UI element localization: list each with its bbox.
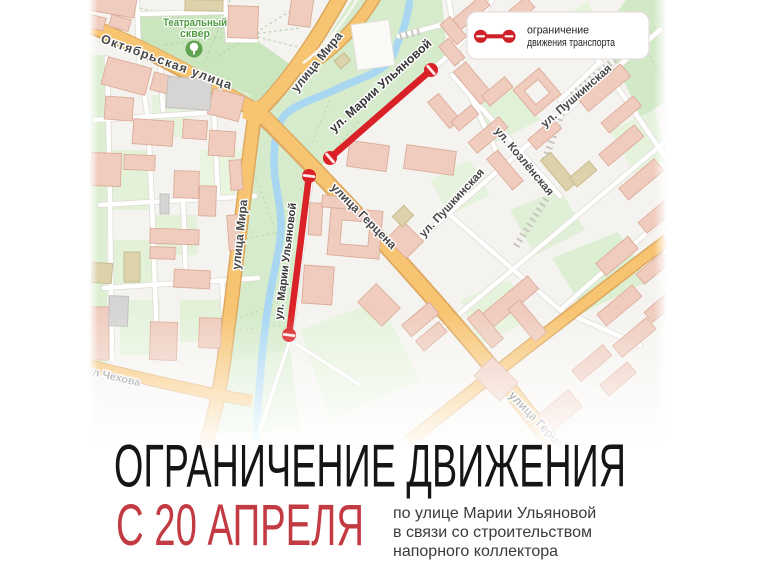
svg-text:в связи со строительством: в связи со строительством [393,524,592,541]
svg-text:по улице Марии Ульяновой: по улице Марии Ульяновой [393,505,596,522]
svg-text:С 20 АПРЕЛЯ: С 20 АПРЕЛЯ [116,493,364,558]
svg-text:движения транспорта: движения транспорта [527,37,615,49]
svg-text:ОГРАНИЧЕНИЕ ДВИЖЕНИЯ: ОГРАНИЧЕНИЕ ДВИЖЕНИЯ [114,432,626,500]
svg-text:напорного коллектора: напорного коллектора [393,543,558,560]
svg-text:сквер: сквер [180,28,210,40]
svg-text:ограничение: ограничение [527,25,589,37]
